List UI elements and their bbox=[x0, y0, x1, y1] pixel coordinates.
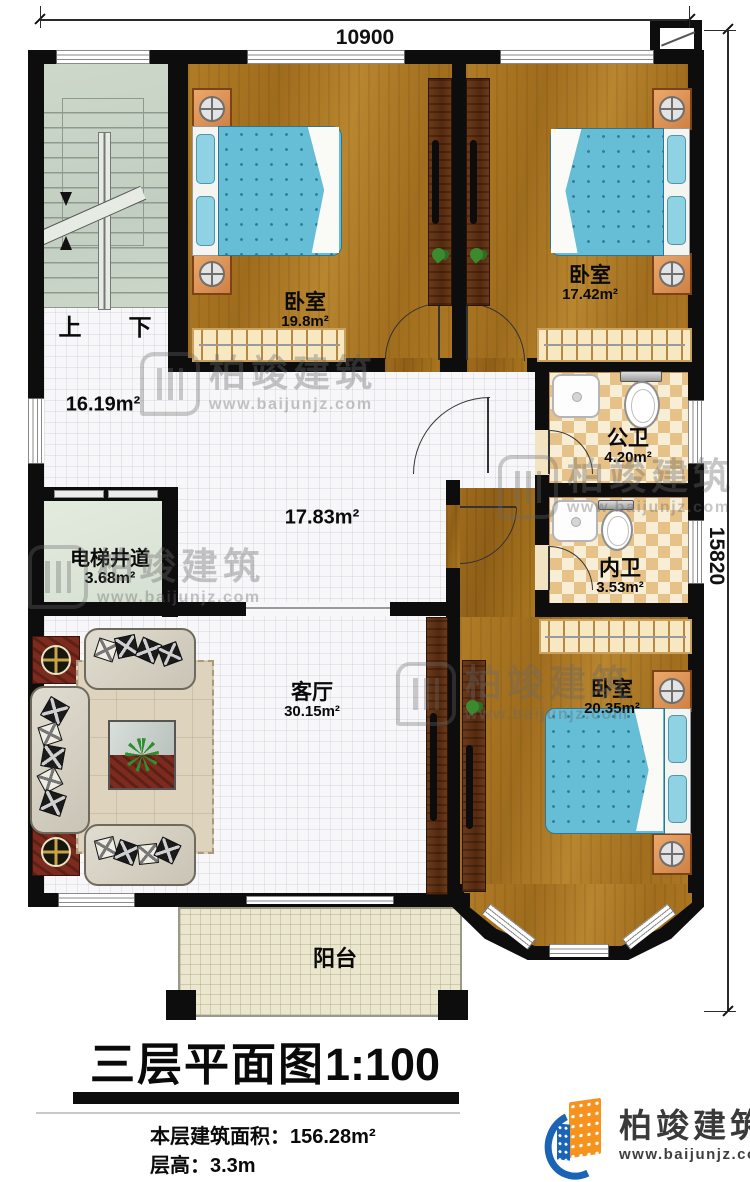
company-logo: 柏竣建筑 www.baijunjz.com bbox=[545, 1098, 750, 1174]
bedroom2-closet bbox=[537, 328, 692, 362]
ensuite-door-leaf bbox=[548, 546, 550, 590]
bedroom3-bed bbox=[545, 708, 689, 832]
faucet-icon bbox=[572, 392, 582, 402]
lamp-icon bbox=[659, 678, 685, 704]
elevator-door-slot-right bbox=[108, 490, 158, 498]
living-side-table-top bbox=[32, 636, 80, 684]
tv-icon bbox=[430, 713, 437, 821]
room-area: 20.35m² bbox=[584, 701, 640, 718]
tv-icon bbox=[466, 745, 473, 829]
ensuite-sink bbox=[552, 500, 598, 542]
room-name: 卧室 bbox=[584, 678, 640, 701]
wall-stair-bedroom1 bbox=[168, 50, 188, 372]
bedroom3-nightstand-top bbox=[652, 670, 692, 712]
balcony-column-right bbox=[438, 990, 468, 1020]
lamp-icon bbox=[199, 261, 225, 287]
publicbath-toilet-bowl bbox=[624, 381, 660, 429]
floor-plan-sheet: 卧室 19.8m² 卧室 17.42m² 公卫 4.20m² 内卫 3.53m²… bbox=[0, 0, 750, 1182]
stair-rail bbox=[98, 132, 111, 310]
ensuite-label: 内卫 3.53m² bbox=[596, 557, 644, 597]
stairs-down-label: 下 bbox=[129, 308, 152, 342]
bedroom3-label: 卧室 20.35m² bbox=[584, 678, 640, 718]
company-url: www.baijunjz.com bbox=[619, 1146, 750, 1163]
company-name: 柏竣建筑 bbox=[619, 1109, 750, 1144]
floor-height-note: 层高：3.3m bbox=[150, 1149, 256, 1178]
lamp-icon bbox=[659, 261, 685, 287]
balcony-column-left bbox=[166, 990, 196, 1020]
publicbath-door-leaf bbox=[548, 430, 550, 474]
bed-pillow bbox=[196, 196, 215, 246]
room-area: 17.42m² bbox=[562, 287, 618, 304]
coffee-table bbox=[108, 720, 176, 790]
dimension-ext bbox=[704, 30, 736, 31]
living-label: 客厅 30.15m² bbox=[284, 681, 340, 721]
toilet-seat bbox=[631, 389, 655, 423]
ensuite-right-window bbox=[688, 520, 704, 584]
lamp-icon bbox=[41, 645, 71, 675]
title-main: 三层平面图 bbox=[90, 1039, 325, 1090]
bed-pillow bbox=[196, 134, 215, 184]
bed-pillow bbox=[668, 715, 687, 763]
living-bottom-window bbox=[58, 893, 135, 907]
closet-rod bbox=[544, 344, 686, 346]
bedroom2-nightstand-top bbox=[652, 88, 692, 130]
vestibule-door-leaf bbox=[460, 506, 516, 508]
lamp-icon bbox=[199, 96, 225, 122]
elevator-label: 电梯井道 3.68m² bbox=[70, 548, 150, 588]
stair-arrow-up bbox=[60, 236, 72, 250]
wall-elevator-right bbox=[162, 487, 178, 617]
balcony-sliding-door bbox=[246, 896, 394, 904]
closet-rod bbox=[199, 344, 340, 346]
bedroom2-bed bbox=[550, 128, 688, 254]
tv-icon bbox=[432, 140, 439, 224]
sheet-title: 三层平面图1:100 bbox=[55, 1028, 475, 1093]
room-name: 卧室 bbox=[281, 291, 329, 314]
hall-area-label: 16.19m² bbox=[66, 394, 141, 417]
bedroom2-door-leaf bbox=[466, 303, 468, 360]
room-name: 卧室 bbox=[562, 264, 618, 287]
bedroom1-label: 卧室 19.8m² bbox=[281, 291, 329, 331]
balcony-label: 阳台 bbox=[313, 941, 357, 973]
publicbath-door-threshold bbox=[535, 430, 549, 475]
ensuite-toilet-bowl bbox=[601, 509, 633, 551]
living-balcony-opening bbox=[246, 602, 390, 616]
title-thin-line bbox=[36, 1112, 460, 1114]
bedroom1-nightstand-top bbox=[192, 88, 232, 130]
dimension-ext bbox=[704, 1011, 736, 1012]
lamp-icon bbox=[41, 837, 71, 867]
logo-building-small bbox=[557, 1123, 570, 1160]
elevator-door-slot-left bbox=[54, 490, 104, 498]
room-area: 4.20m² bbox=[604, 450, 652, 467]
publicbath-label: 公卫 4.20m² bbox=[604, 427, 652, 467]
dimension-width-value: 10900 bbox=[305, 26, 425, 50]
room-name: 客厅 bbox=[284, 681, 340, 704]
logo-building bbox=[569, 1098, 601, 1158]
room-name: 公卫 bbox=[604, 427, 652, 450]
living-side-table-bottom bbox=[32, 828, 80, 876]
bed-pillow bbox=[667, 196, 686, 245]
lamp-icon bbox=[659, 96, 685, 122]
wall-living-top bbox=[28, 602, 246, 616]
toilet-seat bbox=[607, 516, 628, 545]
room-name: 电梯井道 bbox=[70, 548, 150, 570]
publicbath-right-window bbox=[688, 400, 704, 464]
stair-top-window bbox=[56, 50, 150, 64]
publicbath-sink bbox=[552, 374, 600, 418]
bedroom2-nightstand-bottom bbox=[652, 253, 692, 295]
corridor-area-label: 17.83m² bbox=[285, 507, 360, 530]
room-area: 30.15m² bbox=[284, 704, 340, 721]
dimension-ext bbox=[40, 6, 41, 28]
room-area: 19.8m² bbox=[281, 314, 329, 331]
room-name: 内卫 bbox=[596, 557, 644, 580]
bedroom1-closet bbox=[192, 328, 346, 362]
bedroom3-closet bbox=[539, 619, 692, 654]
lamp-icon bbox=[659, 841, 685, 867]
vestibule-door-threshold bbox=[446, 505, 460, 568]
dimension-line-top bbox=[40, 19, 690, 21]
bedroom1-door-leaf bbox=[438, 303, 440, 360]
stair-arrow-down bbox=[60, 192, 72, 206]
bed-pillow bbox=[667, 135, 686, 184]
bedroom2-label: 卧室 17.42m² bbox=[562, 264, 618, 304]
tv-icon bbox=[470, 140, 477, 224]
dimension-line-right bbox=[727, 30, 729, 1012]
bay-window bbox=[452, 884, 704, 960]
title-scale: 1:100 bbox=[325, 1039, 440, 1090]
bed-pillow bbox=[668, 775, 687, 823]
floor-area-note: 本层建筑面积：156.28m² bbox=[150, 1120, 376, 1149]
faucet-icon bbox=[571, 517, 581, 527]
bedroom1-nightstand-bottom bbox=[192, 253, 232, 295]
bedroom1-bed bbox=[192, 126, 340, 254]
bedroom1-top-window bbox=[247, 50, 405, 64]
hall-left-window bbox=[28, 398, 44, 464]
wall-bath-divider bbox=[535, 483, 704, 497]
hall-door-leaf bbox=[487, 397, 489, 473]
bedroom3-nightstand-bottom bbox=[652, 833, 692, 875]
stairs-up-label: 上 bbox=[59, 308, 82, 342]
bedroom1-door-threshold bbox=[385, 358, 440, 372]
dimension-height-value: 15820 bbox=[704, 527, 728, 585]
wall-corridor-stub bbox=[390, 602, 450, 616]
room-area: 3.53m² bbox=[596, 580, 644, 597]
plant-icon bbox=[125, 738, 159, 772]
wall-bedroom3-top bbox=[535, 603, 704, 617]
ensuite-door-threshold bbox=[535, 545, 549, 590]
room-area: 3.68m² bbox=[70, 570, 150, 588]
wall-between-bedrooms bbox=[452, 50, 466, 372]
bay-window-bottom-pane bbox=[549, 944, 609, 957]
bedroom2-top-window bbox=[500, 50, 654, 64]
closet-rod bbox=[545, 636, 685, 638]
living-balcony-step-line bbox=[246, 607, 390, 609]
title-underline-bar bbox=[73, 1092, 459, 1104]
dimension-ext bbox=[689, 6, 690, 28]
company-logo-icon bbox=[545, 1098, 609, 1174]
